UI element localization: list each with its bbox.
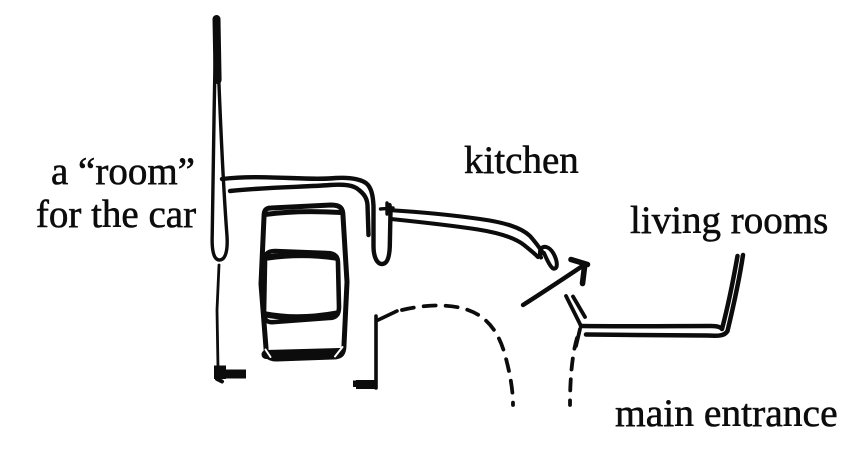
- svg-text:for the car: for the car: [36, 193, 196, 236]
- svg-text:living rooms: living rooms: [630, 199, 828, 242]
- svg-text:a “room”: a “room”: [51, 150, 195, 193]
- svg-text:kitchen: kitchen: [464, 139, 579, 182]
- svg-text:main entrance: main entrance: [615, 391, 838, 435]
